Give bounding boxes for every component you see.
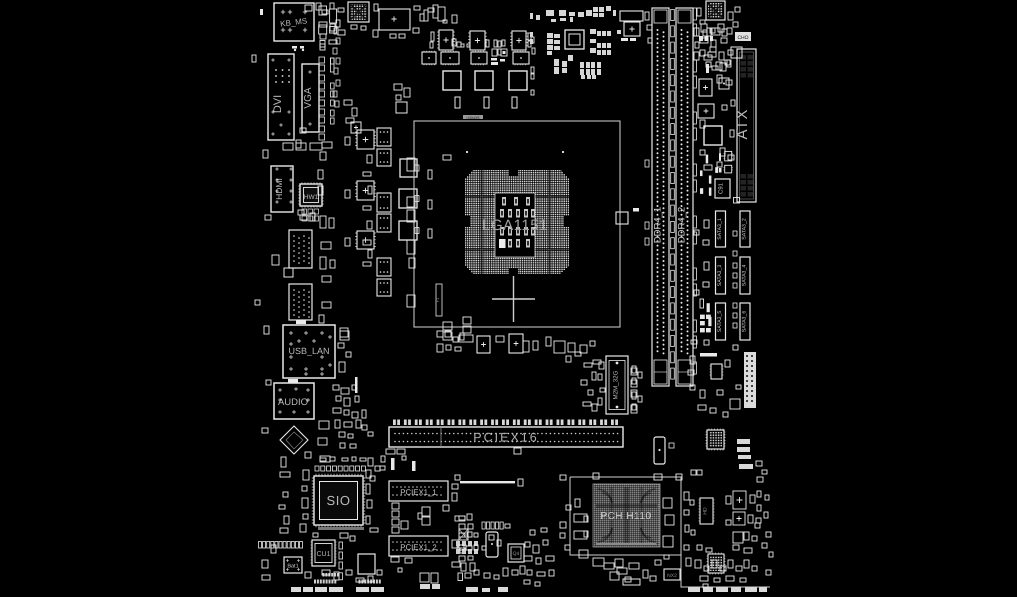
svg-text:C91: C91 [718,182,725,194]
svg-text:SATA3_1: SATA3_1 [717,218,723,240]
svg-text:SIO: SIO [327,493,351,508]
svg-text:U3X4X5: U3X4X5 [466,116,479,120]
svg-text:DDR4_1: DDR4_1 [653,207,664,243]
svg-text:HW1: HW1 [304,194,319,201]
svg-text:PCH H110: PCH H110 [600,511,651,522]
svg-text:DVI: DVI [272,95,284,113]
svg-text:USB_LAN: USB_LAN [288,346,329,356]
svg-text:DDR4_2: DDR4_2 [677,207,688,243]
svg-text:LGA1151: LGA1151 [482,217,548,234]
svg-text:CU1: CU1 [316,551,330,558]
svg-text:NX2: NX2 [667,573,677,579]
svg-text:M2M_32G: M2M_32G [613,370,620,399]
svg-text:SATA3_5: SATA3_5 [717,311,723,333]
svg-text:VGA: VGA [303,87,314,108]
svg-text:PCIEX16: PCIEX16 [473,430,538,444]
svg-text:SATA3_6: SATA3_6 [742,311,748,333]
svg-text:Bat1: Bat1 [287,563,298,569]
svg-text:SATA3_4: SATA3_4 [742,265,748,287]
svg-text:F1: F1 [435,297,440,302]
svg-text:SATA3_3: SATA3_3 [717,265,723,287]
svg-text:AUDIO: AUDIO [278,397,308,408]
svg-text:PCIEX1_2: PCIEX1_2 [400,543,436,552]
svg-text:HD: HD [703,507,709,515]
svg-text:PCIEX1_1: PCIEX1_1 [400,488,436,497]
svg-text:HDMI: HDMI [274,178,284,200]
svg-text:CHO: CHO [737,35,748,41]
svg-text:SATA3_2: SATA3_2 [742,218,748,240]
svg-text:Q4: Q4 [513,551,520,557]
svg-text:ATX: ATX [734,108,751,139]
